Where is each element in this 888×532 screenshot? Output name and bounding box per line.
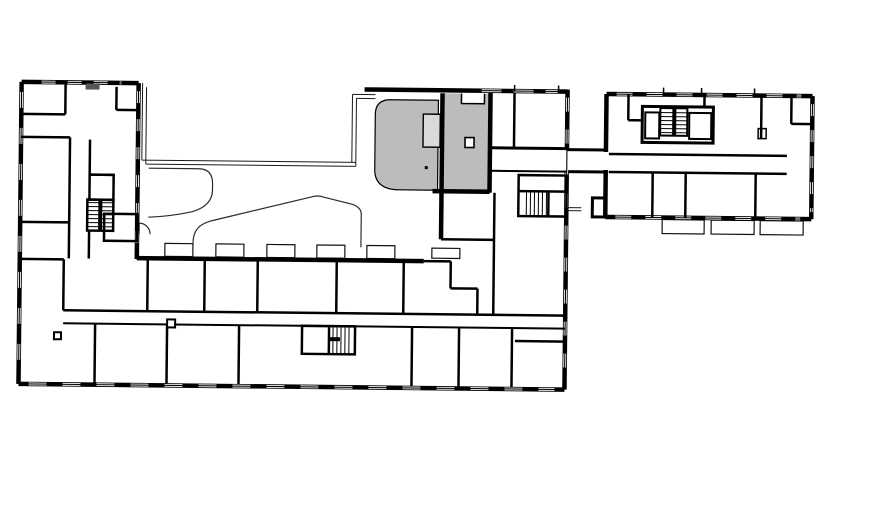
roof-vent [86, 84, 100, 90]
balcony [317, 245, 345, 258]
balcony [267, 244, 295, 257]
unit-door-dot [425, 166, 428, 169]
stair-stringer [98, 200, 102, 231]
balcony [216, 244, 244, 257]
stair-stringer [672, 108, 676, 136]
columns [54, 318, 175, 340]
highlighted-unit[interactable] [375, 93, 490, 191]
column [54, 332, 61, 339]
balcony [662, 220, 704, 234]
stairwell-annex-core [660, 108, 687, 136]
floor-plan [0, 0, 888, 532]
balcony [711, 220, 754, 234]
stair-landing [330, 337, 340, 341]
unit-column [465, 138, 474, 148]
annex-building-interior [592, 94, 812, 219]
connector-corridor [567, 150, 606, 172]
landscape-path-small [148, 168, 213, 218]
unit-wall-recess [423, 114, 440, 147]
courtyard [139, 168, 362, 247]
balcony [367, 245, 395, 258]
balcony [760, 221, 803, 235]
entry-door-arc [139, 223, 150, 234]
balcony [165, 243, 193, 256]
stairwell-east-core [518, 175, 566, 217]
annex-balconies [662, 220, 803, 235]
column [167, 319, 175, 327]
balcony [432, 248, 460, 258]
stairwell-west-wing [87, 200, 113, 231]
unit-notch-outline [461, 93, 484, 103]
landscape-path-large [193, 195, 362, 248]
stairwell-south-wing [302, 326, 355, 355]
floor-plan-canvas [0, 0, 888, 532]
